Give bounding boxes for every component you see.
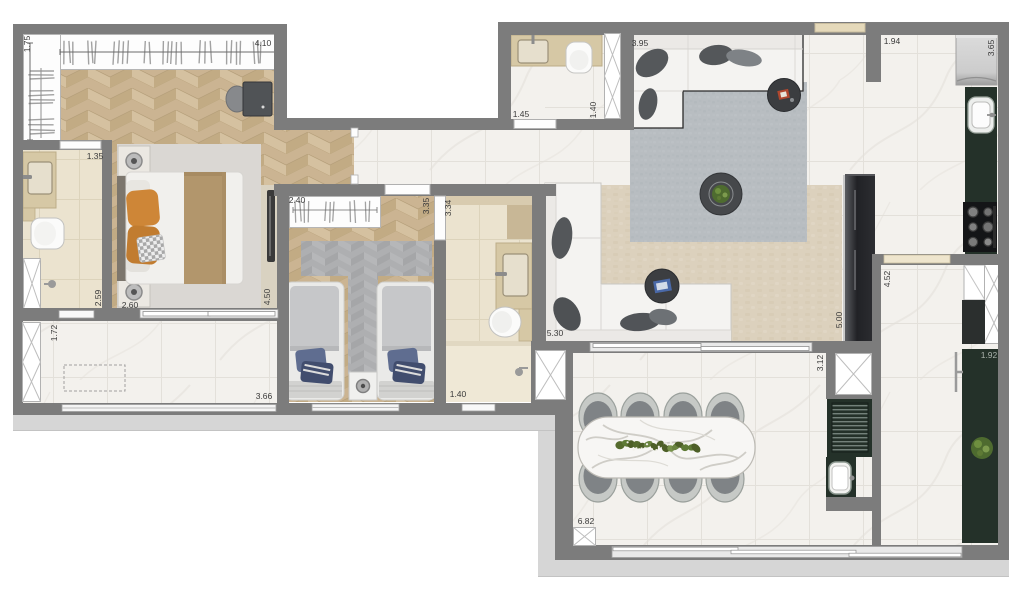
svg-text:1.72: 1.72 xyxy=(49,324,59,341)
svg-text:3.95: 3.95 xyxy=(632,38,649,48)
svg-text:2.59: 2.59 xyxy=(93,289,103,306)
svg-text:3.66: 3.66 xyxy=(256,391,273,401)
svg-text:1.94: 1.94 xyxy=(884,36,901,46)
svg-text:1.92: 1.92 xyxy=(981,350,998,360)
svg-text:4.50: 4.50 xyxy=(262,288,272,305)
svg-text:1.40: 1.40 xyxy=(450,389,467,399)
svg-text:5.30: 5.30 xyxy=(547,328,564,338)
svg-text:1.40: 1.40 xyxy=(588,101,598,118)
svg-text:3.34: 3.34 xyxy=(443,199,453,216)
svg-text:3.12: 3.12 xyxy=(815,354,825,371)
svg-text:1.35: 1.35 xyxy=(87,151,104,161)
svg-text:4.10: 4.10 xyxy=(255,38,272,48)
svg-text:2.40: 2.40 xyxy=(289,195,306,205)
svg-text:1.45: 1.45 xyxy=(513,109,530,119)
svg-text:5.00: 5.00 xyxy=(834,311,844,328)
svg-text:3.35: 3.35 xyxy=(421,197,431,214)
svg-text:3.65: 3.65 xyxy=(986,39,996,56)
svg-text:1.75: 1.75 xyxy=(22,35,32,52)
svg-text:6.82: 6.82 xyxy=(578,516,595,526)
svg-text:4.52: 4.52 xyxy=(882,270,892,287)
svg-text:2.60: 2.60 xyxy=(122,300,139,310)
